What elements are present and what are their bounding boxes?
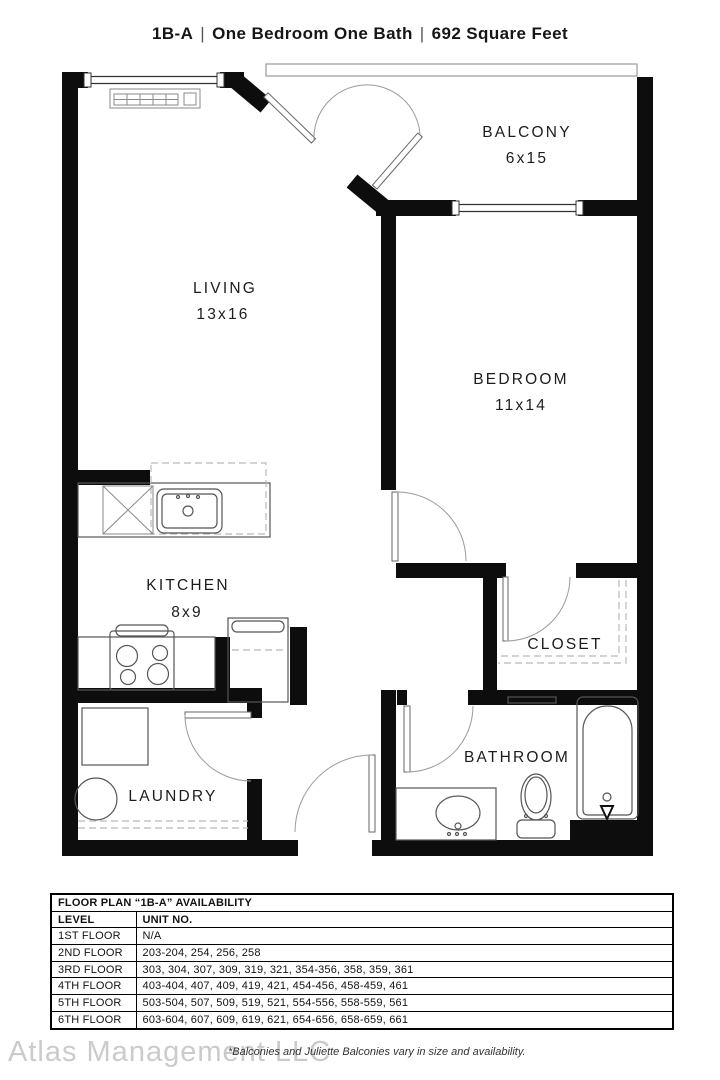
units-cell: N/A [136,928,673,945]
level-cell: 6TH FLOOR [51,1011,136,1028]
units-cell: 203-204, 254, 256, 258 [136,945,673,962]
col-header-level: LEVEL [51,911,136,928]
table-row: 4TH FLOOR 403-404, 407, 409, 419, 421, 4… [51,978,673,995]
laundry-appliance [82,708,148,765]
room-label-bathroom: BATHROOM [464,749,570,766]
toilet [517,774,555,838]
dishwasher [103,486,153,534]
room-label-kitchen: KITCHEN [146,577,229,594]
level-cell: 1ST FLOOR [51,928,136,945]
washer [75,778,117,820]
laundry-shelf [78,821,248,828]
living-window [84,73,224,87]
vanity [396,788,496,840]
room-label-closet: CLOSET [527,636,602,653]
units-cell: 503-504, 507, 509, 519, 521, 554-556, 55… [136,995,673,1012]
balcony-door [264,85,422,189]
units-cell: 303, 304, 307, 309, 319, 321, 354-356, 3… [136,961,673,978]
units-cell: 603-604, 607, 609, 619, 621, 654-656, 65… [136,1011,673,1028]
table-row: 2ND FLOOR 203-204, 254, 256, 258 [51,945,673,962]
table-row: 5TH FLOOR 503-504, 507, 509, 519, 521, 5… [51,995,673,1012]
room-dims-living: 13x16 [196,306,249,323]
stove [110,625,174,690]
lower-counter [78,637,215,690]
bedroom-window [452,201,583,215]
table-row: 3RD FLOOR 303, 304, 307, 309, 319, 321, … [51,961,673,978]
hvac-unit [110,89,200,108]
table-row: 1ST FLOOR N/A [51,928,673,945]
level-cell: 4TH FLOOR [51,978,136,995]
bedroom-door [392,492,466,561]
table-header-row: LEVEL UNIT NO. [51,911,673,928]
room-dims-kitchen: 8x9 [171,604,203,621]
table-row: 6TH FLOOR 603-604, 607, 609, 619, 621, 6… [51,1011,673,1028]
bathroom-door [404,706,473,772]
level-cell: 5TH FLOOR [51,995,136,1012]
laundry-door [185,712,251,781]
room-label-balcony: BALCONY [482,124,571,141]
entry-door [295,755,375,832]
col-header-unit: UNIT NO. [136,911,673,928]
room-label-bedroom: BEDROOM [473,371,569,388]
level-cell: 2ND FLOOR [51,945,136,962]
walls [62,72,653,856]
units-cell: 403-404, 407, 409, 419, 421, 454-456, 45… [136,978,673,995]
table-title: FLOOR PLAN “1B-A” AVAILABILITY [51,894,673,911]
level-cell: 3RD FLOOR [51,961,136,978]
kitchen-sink [157,489,222,533]
room-dims-bedroom: 11x14 [495,397,547,414]
closet-door [503,577,570,641]
tub-faucet-marker [601,806,613,819]
floor-plan-page: 1B-A|One Bedroom One Bath|692 Square Fee… [0,0,720,1080]
room-dims-balcony: 6x15 [506,150,548,167]
balcony-disclaimer-note: *Balconies and Juliette Balconies vary i… [228,1046,526,1058]
room-label-living: LIVING [193,280,257,297]
room-label-laundry: LAUNDRY [128,788,217,805]
balcony-railing [266,64,637,76]
availability-table: FLOOR PLAN “1B-A” AVAILABILITY LEVEL UNI… [50,893,674,1030]
table-title-row: FLOOR PLAN “1B-A” AVAILABILITY [51,894,673,911]
bathtub [577,697,638,819]
